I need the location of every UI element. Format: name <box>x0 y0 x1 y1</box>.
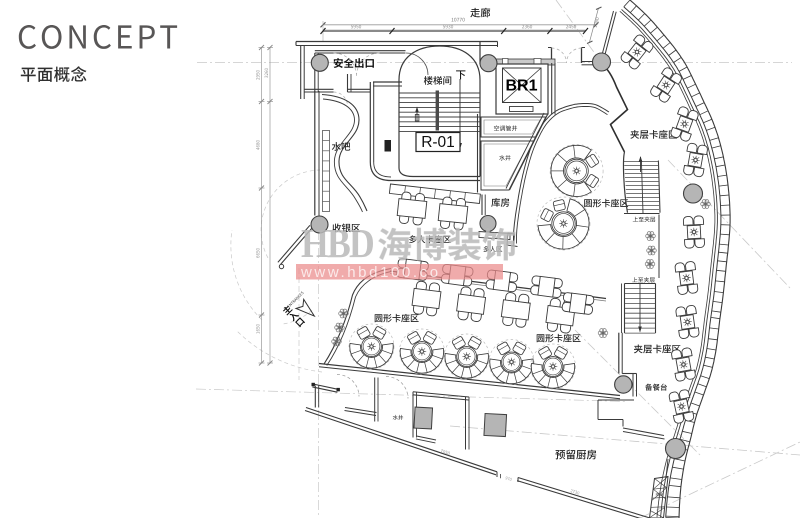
svg-text:www.hbd100.co: www.hbd100.co <box>300 264 441 281</box>
svg-text:BR1: BR1 <box>505 78 537 95</box>
svg-text:R-01: R-01 <box>421 134 455 151</box>
svg-text:HBD: HBD <box>301 220 373 266</box>
